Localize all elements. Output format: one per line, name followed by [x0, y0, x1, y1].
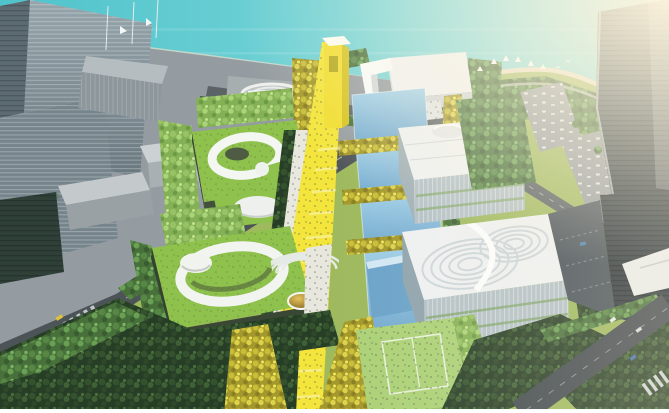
masterplan-rendering — [0, 0, 669, 413]
sun-glare — [0, 0, 669, 413]
bottom-margin — [0, 409, 669, 413]
rendering-canvas — [0, 0, 669, 413]
